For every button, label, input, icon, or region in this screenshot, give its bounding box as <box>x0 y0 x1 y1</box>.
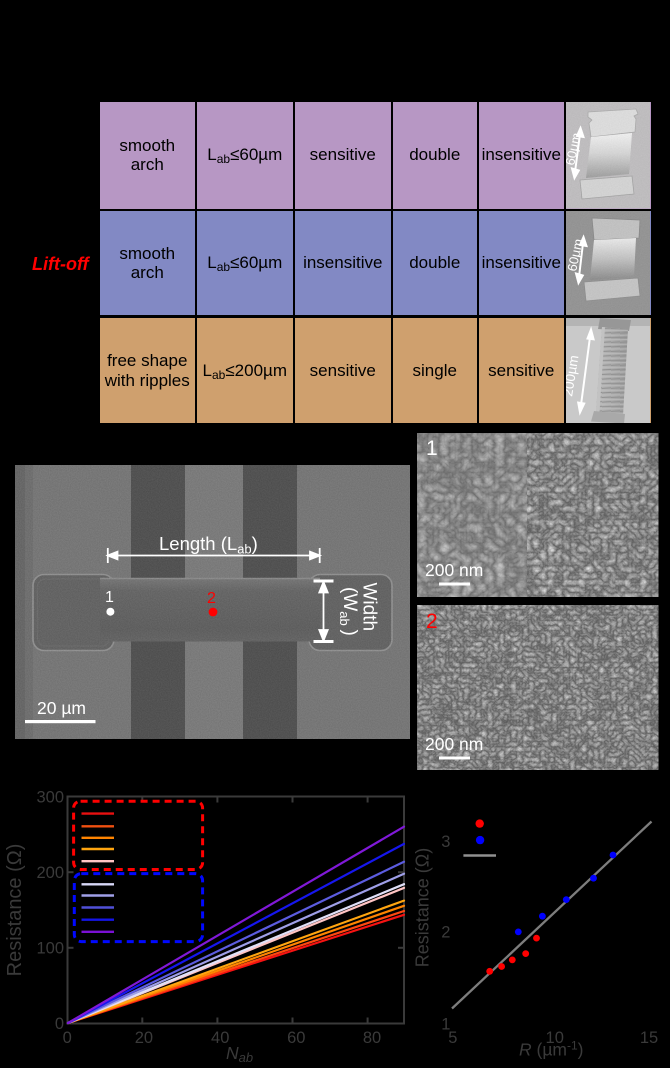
svg-text:60: 60 <box>287 1029 305 1047</box>
svg-text:200 nm: 200 nm <box>425 560 483 580</box>
svg-text:Width: Width <box>359 582 380 631</box>
svg-text:200: 200 <box>36 864 64 882</box>
svg-text:3: 3 <box>441 833 450 851</box>
svg-text:100: 100 <box>36 940 64 958</box>
svg-text:Nab: Nab <box>226 1043 253 1063</box>
svg-text:2: 2 <box>207 590 216 607</box>
svg-text:R (µm-1): R (µm-1) <box>519 1039 584 1060</box>
svg-text:20 µm: 20 µm <box>37 698 86 718</box>
svg-text:20: 20 <box>135 1029 153 1047</box>
svg-text:200 nm: 200 nm <box>425 734 483 754</box>
svg-text:0: 0 <box>63 1029 72 1047</box>
svg-text:2: 2 <box>426 610 438 633</box>
svg-text:2: 2 <box>441 923 450 941</box>
svg-text:1: 1 <box>426 437 438 460</box>
svg-text:5: 5 <box>448 1029 457 1047</box>
svg-text:80: 80 <box>363 1029 381 1047</box>
svg-text:1: 1 <box>105 589 114 606</box>
svg-text:Resistance (Ω): Resistance (Ω) <box>413 848 433 968</box>
svg-text:15: 15 <box>640 1029 658 1047</box>
svg-text:300: 300 <box>36 789 64 807</box>
svg-text:Resistance (Ω): Resistance (Ω) <box>4 844 26 977</box>
